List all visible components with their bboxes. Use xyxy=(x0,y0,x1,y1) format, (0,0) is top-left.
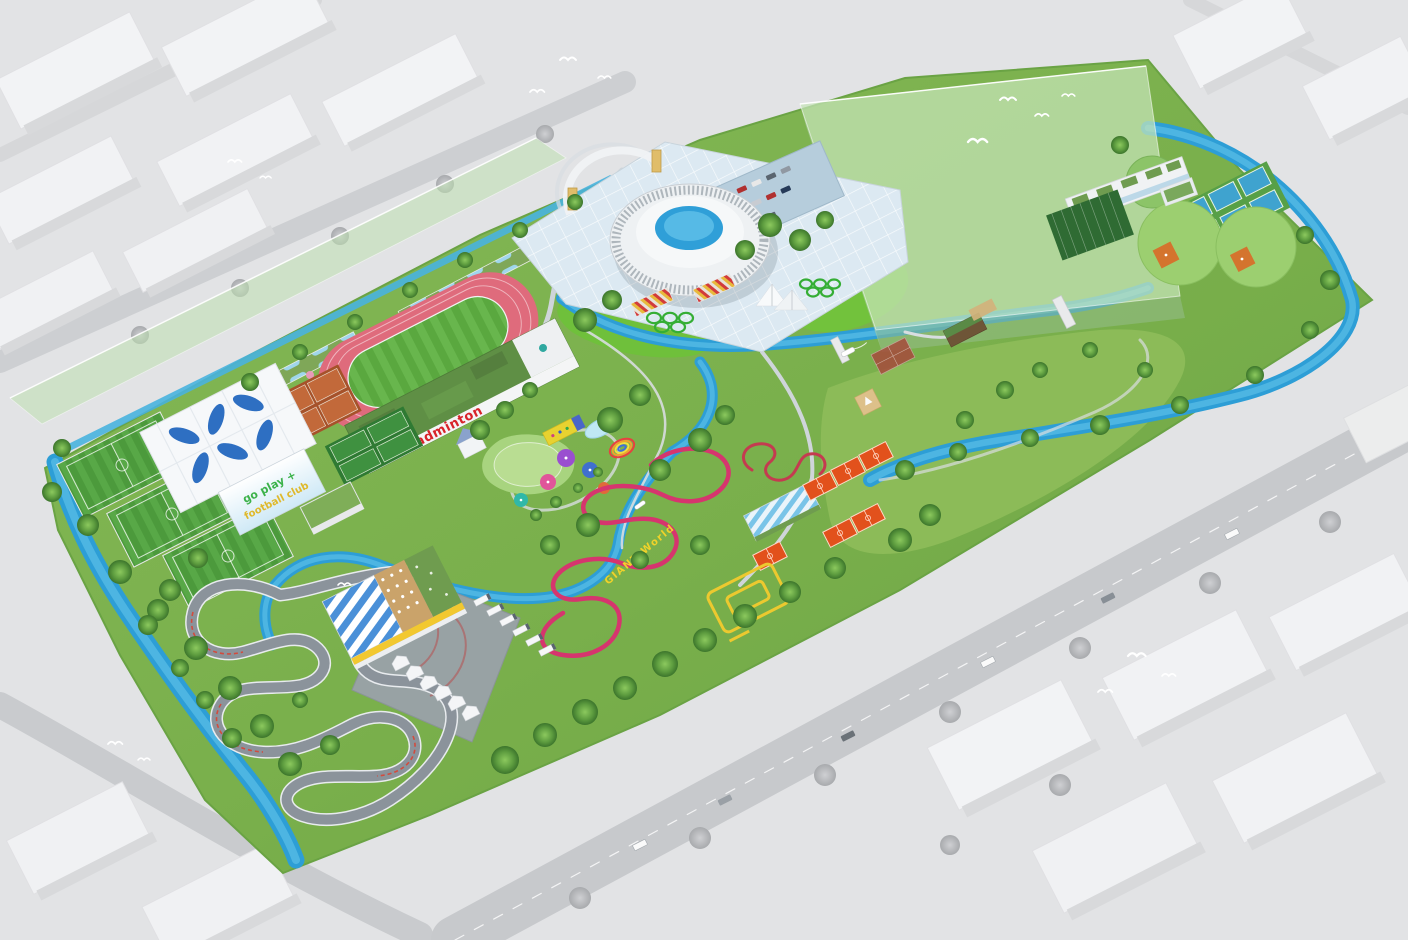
site-plan-svg: badminton xyxy=(0,0,1408,940)
masterplan-rendering: badminton xyxy=(0,0,1408,940)
baseball-field xyxy=(1216,207,1296,287)
baseball-field xyxy=(1138,201,1222,285)
